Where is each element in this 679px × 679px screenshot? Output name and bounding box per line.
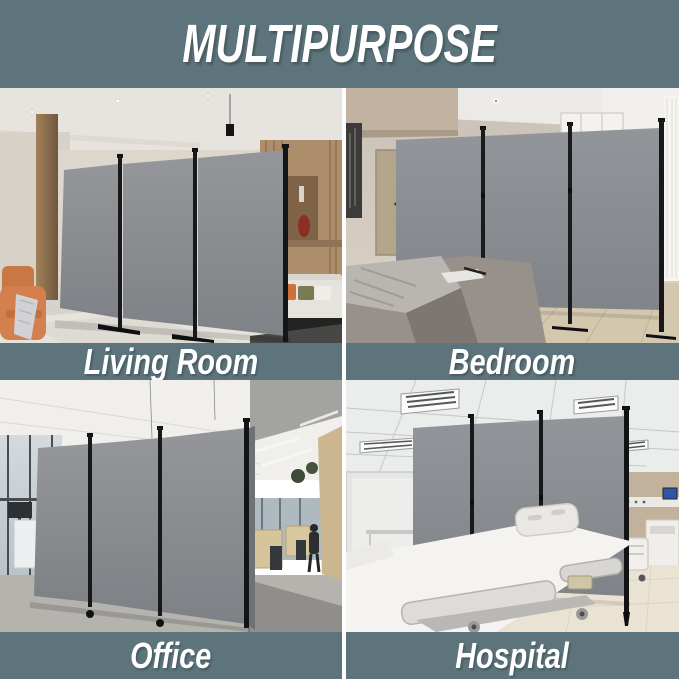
living-room-photo — [0, 88, 342, 343]
office-photo — [0, 380, 342, 632]
bedroom-caption-band: Bedroom — [346, 343, 679, 380]
hospital-illustration — [346, 380, 679, 632]
bedroom-bed — [346, 256, 546, 343]
hospital-photo — [346, 380, 679, 632]
product-multipurpose-poster: MULTIPURPOSE — [0, 0, 679, 679]
bedroom-photo — [346, 88, 679, 343]
bedroom-illustration — [346, 88, 679, 343]
hospital-caption-band: Hospital — [346, 632, 679, 679]
living-room-label: Living Room — [84, 344, 258, 380]
living-room-illustration — [0, 88, 342, 343]
office-caption-band: Office — [0, 632, 342, 679]
living-room-caption-band: Living Room — [0, 343, 342, 380]
hospital-label: Hospital — [456, 638, 570, 674]
poster-header: MULTIPURPOSE — [0, 0, 679, 88]
office-label: Office — [130, 638, 211, 674]
poster-title: MULTIPURPOSE — [182, 17, 497, 71]
grid-left-column: Living Room — [0, 88, 342, 679]
grid-right-column: Bedroom — [346, 88, 679, 679]
bedroom-label: Bedroom — [449, 344, 575, 380]
office-illustration — [0, 380, 342, 632]
scene-grid: Living Room — [0, 88, 679, 679]
